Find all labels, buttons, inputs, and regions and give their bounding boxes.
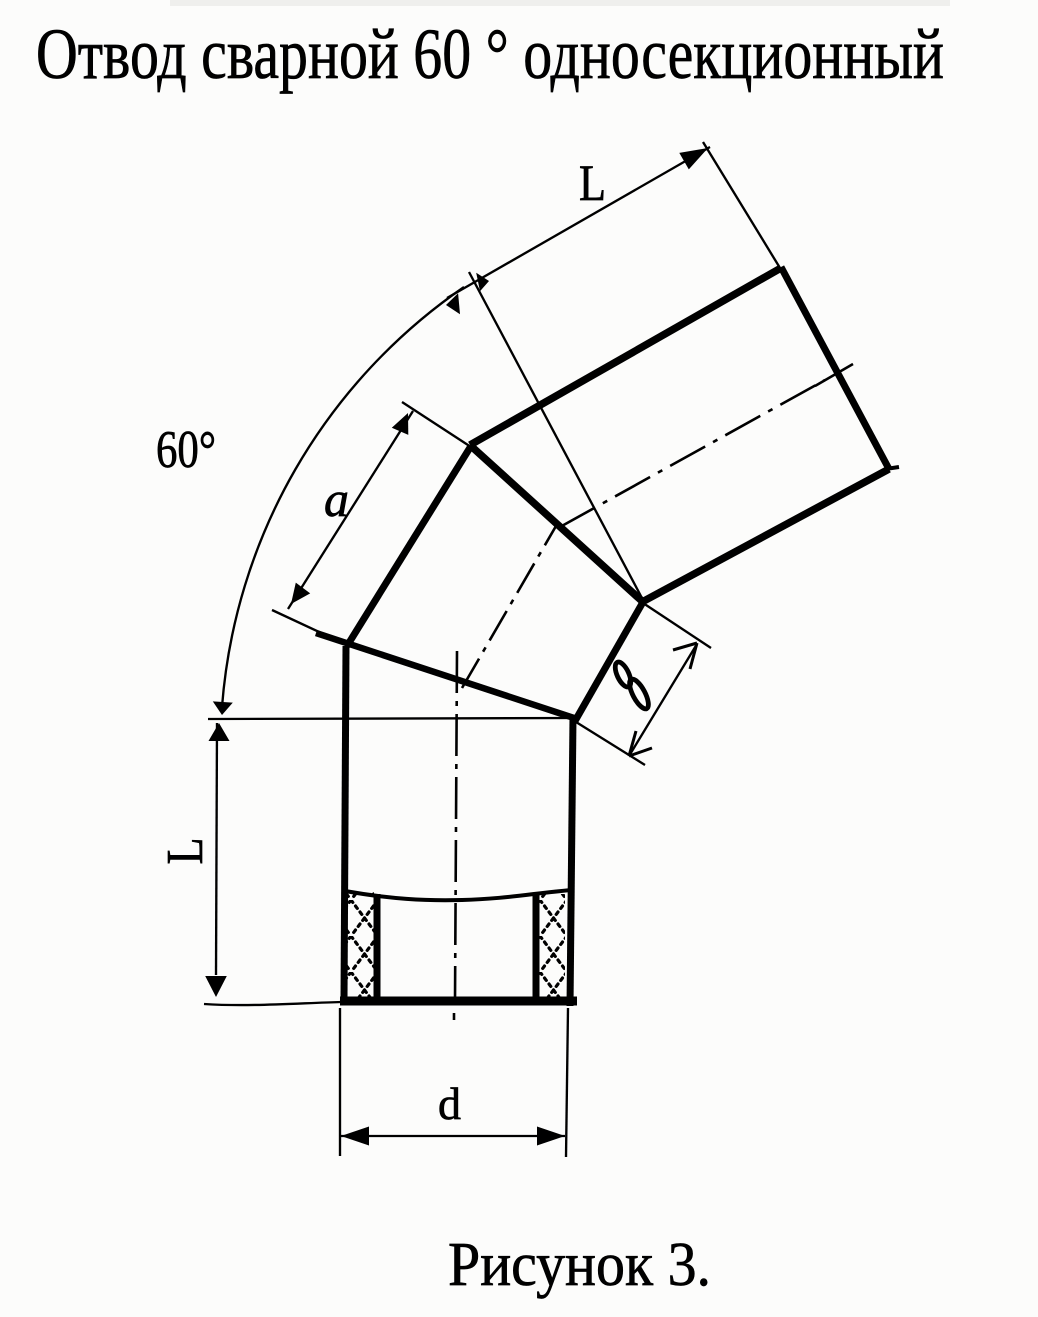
svg-text:Отвод сварной 60 ° односекцион: Отвод сварной 60 ° односекционный xyxy=(36,14,944,94)
svg-text:a: a xyxy=(324,471,349,527)
svg-text:Рисунок 3.: Рисунок 3. xyxy=(448,1231,711,1299)
svg-text:L: L xyxy=(579,156,606,212)
svg-text:d: d xyxy=(438,1078,461,1129)
svg-text:60°: 60° xyxy=(156,421,216,479)
svg-text:L: L xyxy=(157,838,214,865)
